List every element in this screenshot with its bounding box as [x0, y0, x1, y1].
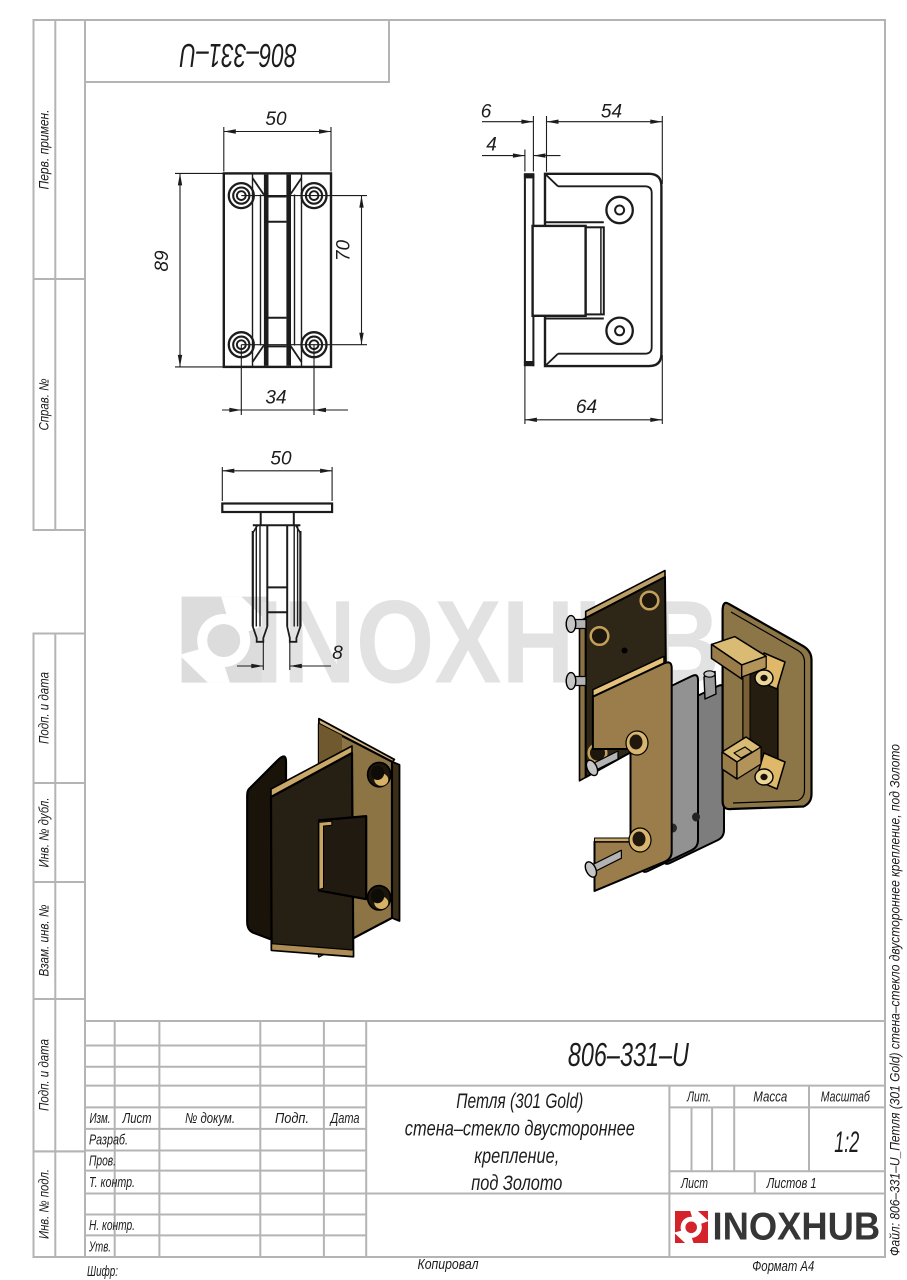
svg-text:64: 64 [576, 397, 597, 418]
svg-text:Подп. и дата: Подп. и дата [37, 1039, 52, 1111]
svg-text:Формат А4: Формат А4 [752, 1259, 814, 1275]
svg-text:Шифр:: Шифр: [87, 1264, 118, 1280]
svg-text:6: 6 [481, 101, 492, 122]
svg-text:54: 54 [601, 101, 622, 122]
svg-text:70: 70 [334, 240, 355, 262]
svg-text:Подп. и дата: Подп. и дата [37, 672, 52, 744]
svg-text:крепление,: крепление, [474, 1145, 559, 1168]
svg-text:89: 89 [152, 250, 173, 272]
svg-text:Масштаб: Масштаб [821, 1090, 871, 1106]
svg-text:50: 50 [265, 109, 287, 130]
svg-text:Изм.: Изм. [90, 1111, 111, 1127]
svg-text:Пров.: Пров. [89, 1154, 116, 1170]
svg-text:№ докум.: № докум. [185, 1111, 235, 1127]
svg-text:Лит.: Лит. [686, 1090, 711, 1106]
svg-text:Взам. инв. №: Взам. инв. № [37, 904, 52, 976]
svg-text:806–331–U: 806–331–U [568, 1036, 689, 1073]
svg-text:стена–стекло двустороннее: стена–стекло двустороннее [405, 1118, 635, 1141]
svg-text:Масса: Масса [753, 1090, 787, 1106]
svg-text:806–331–U: 806–331–U [180, 37, 297, 74]
svg-text:8: 8 [332, 643, 343, 664]
svg-text:4: 4 [486, 135, 497, 156]
svg-text:Инв. № дубл.: Инв. № дубл. [37, 798, 52, 868]
svg-text:34: 34 [265, 388, 286, 409]
svg-text:50: 50 [270, 448, 292, 469]
svg-text:Лист: Лист [680, 1176, 708, 1192]
svg-text:Т. контр.: Т. контр. [89, 1175, 135, 1191]
svg-text:Перв. примен.: Перв. примен. [37, 110, 52, 190]
svg-text:Дата: Дата [329, 1111, 360, 1127]
svg-text:Петля (301 Gold): Петля (301 Gold) [456, 1090, 583, 1113]
svg-text:Лист: Лист [122, 1111, 152, 1127]
svg-text:Справ. №: Справ. № [37, 378, 52, 430]
svg-text:Копировал: Копировал [418, 1257, 479, 1273]
svg-text:Подп.: Подп. [275, 1111, 309, 1127]
svg-text:Листов 1: Листов 1 [766, 1176, 817, 1192]
svg-text:Утв.: Утв. [88, 1240, 111, 1256]
svg-text:Разраб.: Разраб. [89, 1133, 128, 1149]
svg-text:1:2: 1:2 [834, 1126, 859, 1159]
svg-text:Инв. № подл.: Инв. № подл. [37, 1169, 52, 1239]
svg-text:Н. контр.: Н. контр. [89, 1218, 135, 1234]
svg-text:под Золото: под Золото [471, 1172, 562, 1195]
svg-text:INOXHUB: INOXHUB [713, 1205, 881, 1248]
svg-text:Файл: 806–331–U_Петля (301 Gol: Файл: 806–331–U_Петля (301 Gold) стена–с… [888, 744, 903, 1256]
